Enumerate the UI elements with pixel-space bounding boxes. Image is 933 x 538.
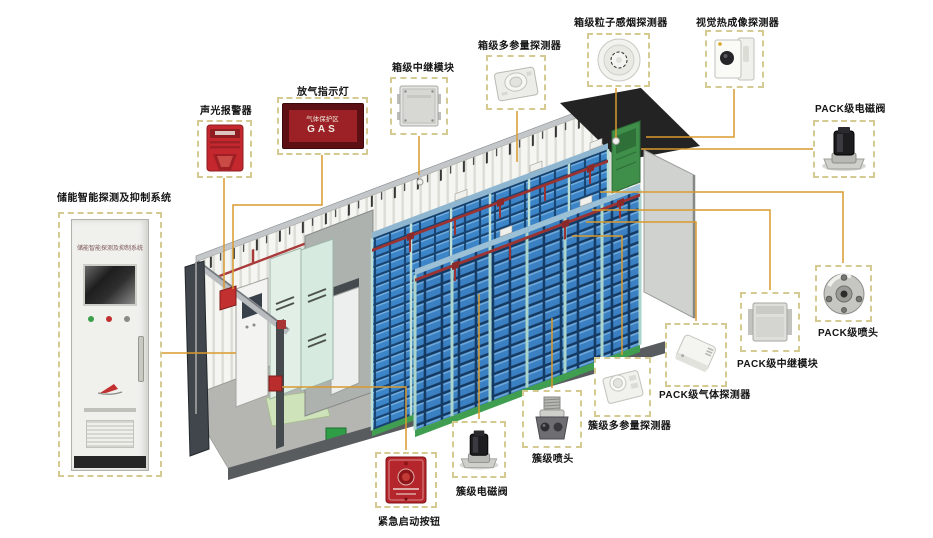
- cabinet-handle: [138, 336, 144, 382]
- cabinet-screen: [83, 264, 137, 306]
- callout-box-sound-light-alarm: [197, 120, 252, 178]
- cabinet-base: [74, 456, 146, 468]
- cluster-nozzle-image: [527, 395, 577, 443]
- system-cabinet-image: 储能智能探测及抑制系统: [71, 219, 149, 471]
- callout-box-pack-nozzle: [815, 265, 872, 322]
- callout-label-box-multi-param-detector: 箱级多参量探测器: [478, 37, 561, 52]
- gas-zone-text: 气体保护区: [306, 117, 339, 124]
- callout-box-pack-relay-module: [740, 292, 800, 352]
- cabinet-indicator-grey: [124, 316, 130, 322]
- end-wall: [644, 150, 694, 318]
- cabinet-vent-grille: [86, 420, 134, 448]
- pack-solenoid-valve-image: [818, 125, 870, 173]
- cabinet-logo: [72, 382, 148, 396]
- callout-label-pack-relay-module: PACK级中继模块: [737, 355, 818, 370]
- callout-label-pack-gas-detector: PACK级气体探测器: [659, 386, 751, 401]
- callout-box-emergency-start-button: [375, 452, 437, 508]
- callout-box-cluster-multi-param-detector: [594, 357, 651, 417]
- ceiling-detector: [417, 179, 423, 185]
- gas-text: GAS: [307, 125, 338, 135]
- emergency-start-button-image: [384, 455, 428, 505]
- callout-label-box-relay-module: 箱级中继模块: [392, 59, 454, 74]
- callout-box-thermal-imaging-detector: [705, 30, 764, 88]
- callout-box-pack-solenoid-valve: [813, 120, 875, 178]
- callout-box-system-cabinet: 储能智能探测及抑制系统: [58, 212, 162, 477]
- callout-label-cluster-solenoid-valve: 簇级电磁阀: [456, 483, 508, 498]
- pack-nozzle-image: [820, 270, 868, 318]
- pack-gas-detector-image: [670, 328, 722, 382]
- diagram-stage: 储能智能探测及抑制系统 声光报警器 放气指示灯 箱级中继模块 箱级多参量探测器 …: [0, 0, 933, 538]
- callout-box-pack-gas-detector: [665, 323, 727, 387]
- pack-relay-module-image: [745, 297, 795, 347]
- callout-box-cluster-nozzle: [522, 390, 582, 448]
- callout-label-thermal-imaging-detector: 视觉热成像探测器: [696, 14, 779, 29]
- callout-label-cluster-multi-param-detector: 簇级多参量探测器: [588, 417, 671, 432]
- callout-label-cluster-nozzle: 簇级喷头: [532, 450, 574, 465]
- callout-label-pack-nozzle: PACK级喷头: [818, 324, 878, 339]
- cabinet-indicator-green: [88, 316, 94, 322]
- cabinet-company-text-bar: [84, 408, 136, 412]
- cluster-solenoid-valve-image: [456, 428, 502, 472]
- cabinet-indicator-red: [106, 316, 112, 322]
- sound-light-alarm-image: [203, 123, 247, 175]
- callout-label-emergency-start-button: 紧急启动按钮: [378, 513, 440, 528]
- cabinet-panel-text: 储能智能探测及抑制系统: [75, 246, 145, 253]
- callout-label-system-cabinet: 储能智能探测及抑制系统: [57, 189, 171, 204]
- box-smoke-detector-image: [592, 36, 646, 84]
- callout-box-gas-release-indicator: 气体保护区 GAS: [277, 97, 368, 155]
- callout-label-sound-light-alarm: 声光报警器: [200, 102, 252, 117]
- callout-box-box-relay-module: [390, 77, 448, 135]
- cluster-multi-param-detector-image: [599, 362, 647, 412]
- callout-box-box-multi-param-detector: [486, 55, 546, 110]
- callout-label-pack-solenoid-valve: PACK级电磁阀: [815, 100, 886, 115]
- box-multi-param-detector-image: [490, 60, 542, 106]
- callout-box-cluster-solenoid-valve: [452, 421, 506, 478]
- ceiling-smoke-detector: [613, 138, 620, 145]
- callout-label-box-smoke-detector: 箱级粒子感烟探测器: [574, 14, 668, 29]
- callout-box-box-smoke-detector: [587, 33, 650, 87]
- thermal-imaging-detector-image: [710, 34, 760, 84]
- callout-label-gas-release-indicator: 放气指示灯: [297, 83, 349, 98]
- gas-release-indicator-image: 气体保护区 GAS: [282, 103, 364, 149]
- mounted-emergency-button: [269, 376, 282, 391]
- box-relay-module-image: [395, 82, 443, 130]
